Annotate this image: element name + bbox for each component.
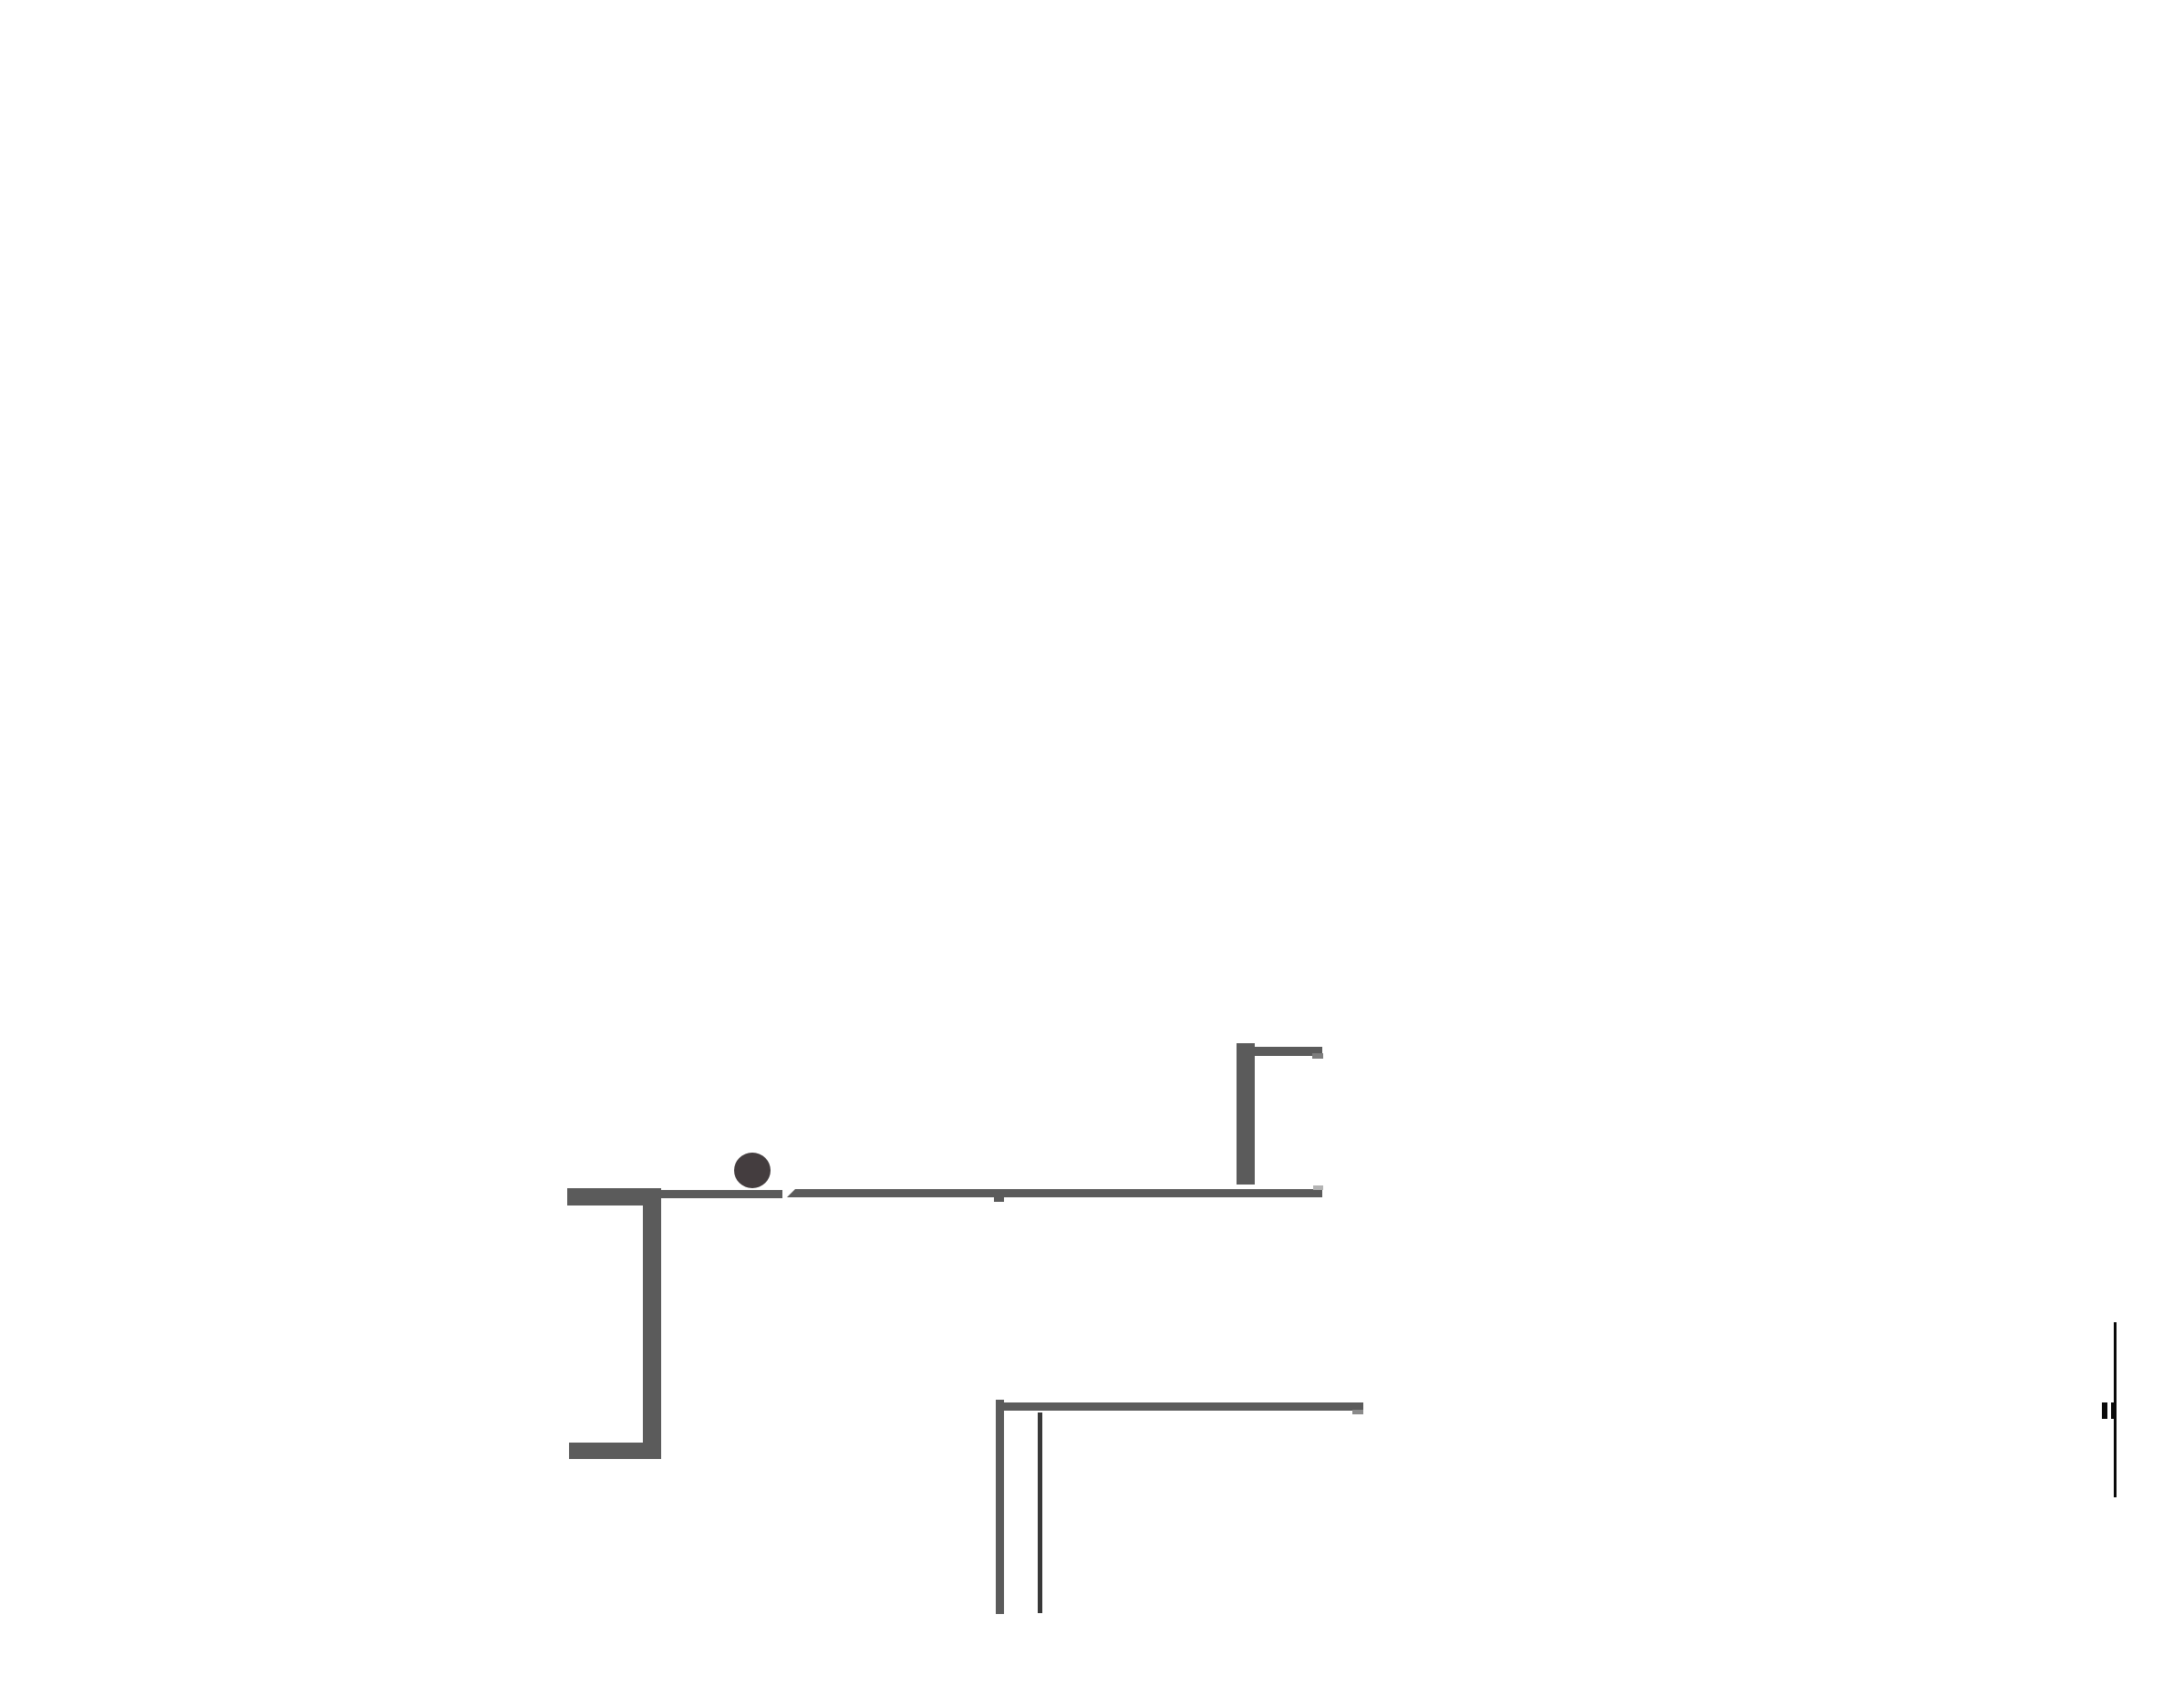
left-bracket-wall xyxy=(643,1205,661,1459)
edge-tick xyxy=(2102,1402,2107,1419)
left-bracket-bottom-bar xyxy=(569,1443,661,1459)
physics-canvas[interactable] xyxy=(0,0,2184,1697)
goalpost-arm-end-cap xyxy=(1312,1053,1323,1059)
platform-segment-right xyxy=(787,1189,1322,1197)
platform-under-tick xyxy=(994,1197,1004,1202)
ball[interactable] xyxy=(734,1153,771,1188)
platform-segment-left xyxy=(661,1190,782,1198)
edge-line-thick-segment xyxy=(2111,1402,2117,1419)
lower-roof-end-cap xyxy=(1352,1410,1363,1414)
lower-inner-line xyxy=(1038,1412,1042,1613)
goalpost-pole xyxy=(1237,1043,1255,1185)
left-bracket-top-bar xyxy=(567,1188,661,1205)
lower-roof xyxy=(1003,1402,1363,1411)
lower-wall xyxy=(996,1400,1004,1614)
platform-right-end-cap xyxy=(1313,1185,1323,1190)
